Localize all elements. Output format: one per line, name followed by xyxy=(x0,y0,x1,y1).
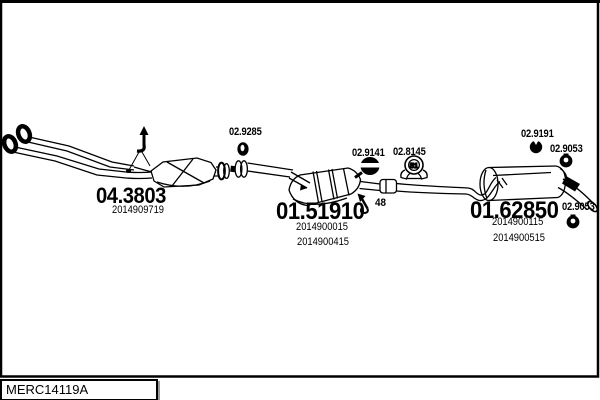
pipe-joint-front xyxy=(214,161,247,180)
part-number-hanger-ring-rear: 02.9053 xyxy=(562,202,595,213)
part-number-hanger-ring-top: 02.9053 xyxy=(550,144,583,155)
hanger-ring-icon-top xyxy=(560,154,573,168)
hanger-arrow-icon xyxy=(126,126,150,173)
centre-clamp-icon xyxy=(355,157,380,178)
front-clamp-icon xyxy=(237,142,248,156)
part-number-rubber-mount: 02.9191 xyxy=(521,129,554,140)
drawing-code-box: MERC14119A xyxy=(0,379,158,400)
drawing-border xyxy=(0,2,600,377)
bracket-clamp-icon: 51 xyxy=(401,156,427,179)
centre-outlet-sleeve xyxy=(360,180,397,194)
centre-inlet-pipe xyxy=(248,163,294,177)
oe-ref-centre-silencer-1: 2014900015 xyxy=(296,222,348,233)
exhaust-system-diagram: 51 xyxy=(0,0,600,400)
part-number-centre-clamp: 02.9141 xyxy=(352,148,385,159)
rubber-mount-icon xyxy=(530,141,542,154)
hanger-ring-icon-rear xyxy=(567,215,580,229)
footnote-centre-silencer: 48 xyxy=(375,198,386,209)
oe-ref-centre-silencer-2: 2014900415 xyxy=(297,237,349,248)
rear-silencer-body xyxy=(480,166,567,201)
part-number-bracket-clamp: 02.8145 xyxy=(393,147,426,158)
bracket-clamp-diameter: 51 xyxy=(410,161,418,170)
drawing-code: MERC14119A xyxy=(6,382,88,397)
diagram-artwork: 51 xyxy=(0,0,600,378)
part-number-front-clamp: 02.9285 xyxy=(229,127,262,138)
oe-ref-front-pipe-catalyst: 2014909719 xyxy=(112,205,164,216)
oe-ref-rear-silencer-2: 2014900515 xyxy=(493,233,545,244)
oe-ref-rear-silencer-1: 2014900115 xyxy=(492,217,543,228)
